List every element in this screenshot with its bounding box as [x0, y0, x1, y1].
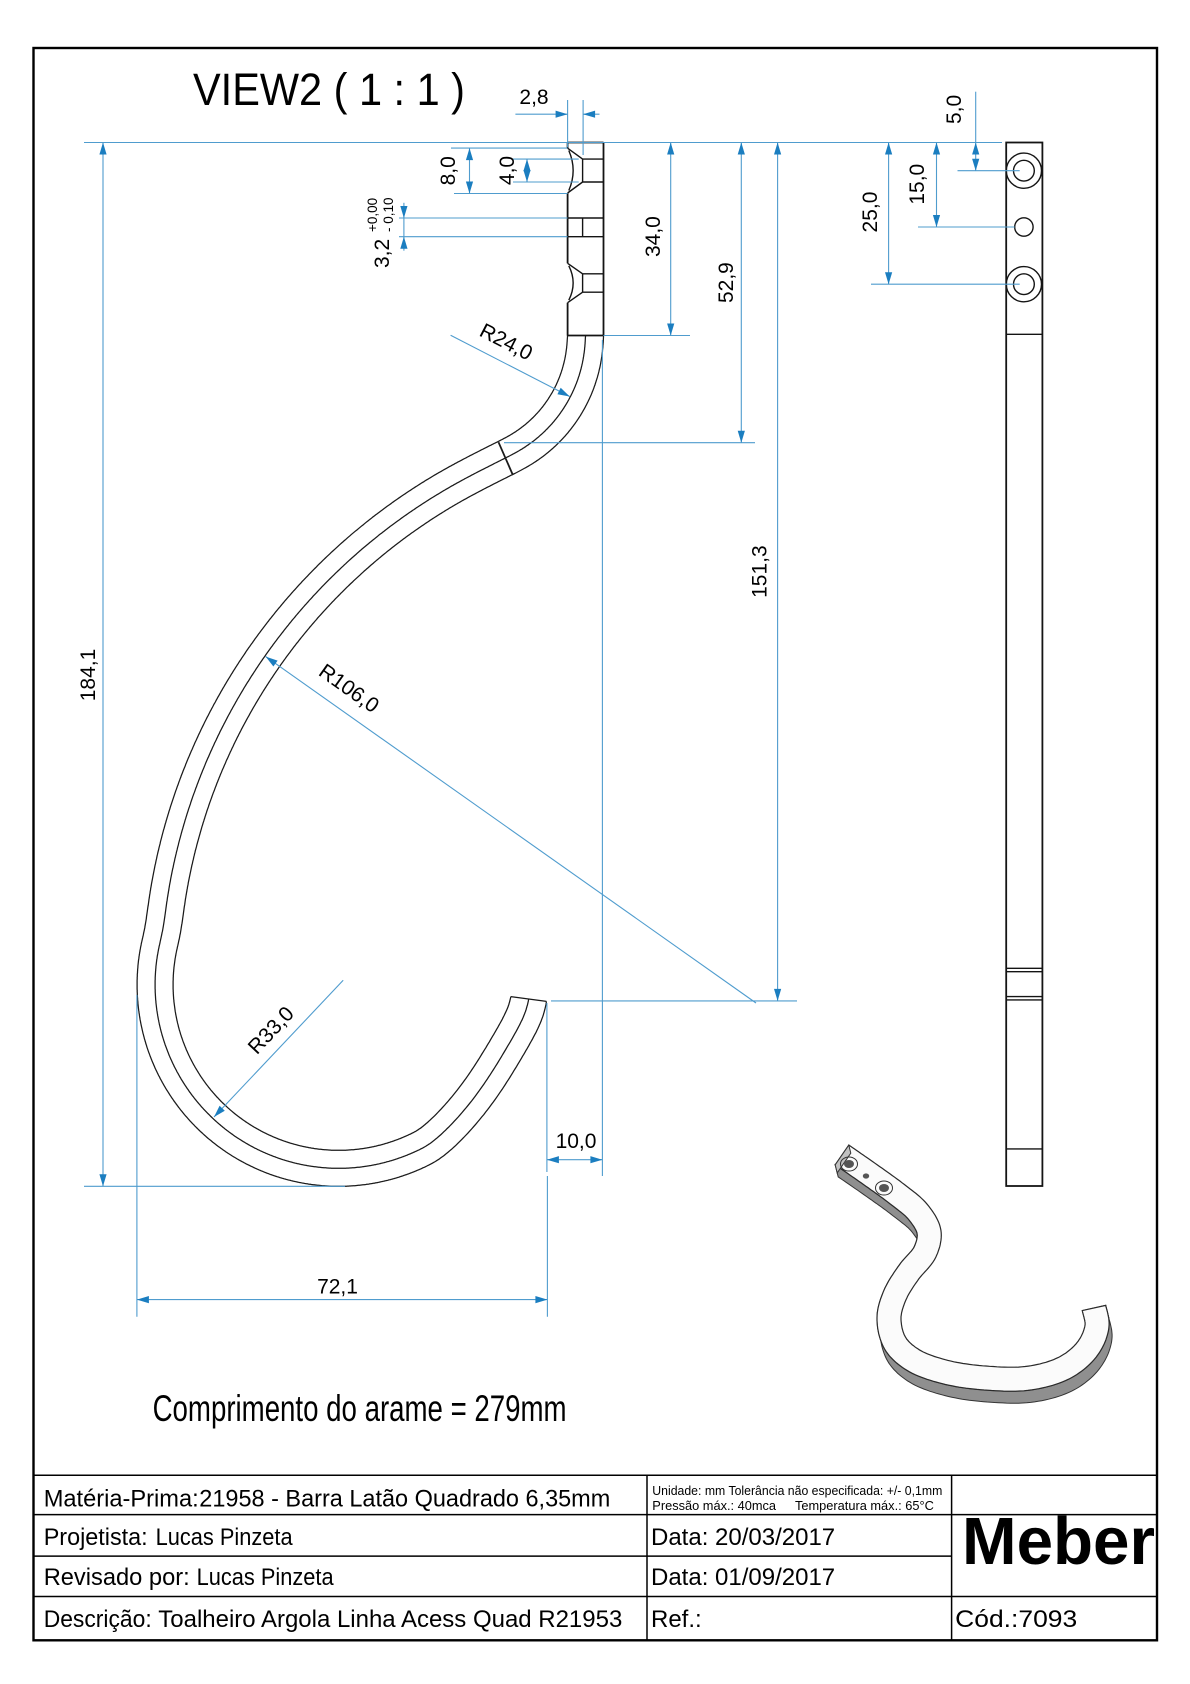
- svg-text:Lucas Pinzeta: Lucas Pinzeta: [197, 1564, 335, 1591]
- svg-text:Temperatura máx.: 65°C: Temperatura máx.: 65°C: [795, 1498, 934, 1513]
- svg-text:Descrição:: Descrição:: [44, 1606, 152, 1633]
- svg-text:Revisado por:: Revisado por:: [44, 1564, 190, 1591]
- svg-text:184,1: 184,1: [77, 649, 100, 702]
- svg-text:Matéria-Prima:: Matéria-Prima:: [44, 1486, 199, 1513]
- svg-text:52,9: 52,9: [715, 262, 738, 303]
- svg-text:8,0: 8,0: [437, 156, 460, 185]
- svg-text:Lucas Pinzeta: Lucas Pinzeta: [156, 1524, 294, 1551]
- svg-text:VIEW2 ( 1 : 1 ): VIEW2 ( 1 : 1 ): [193, 64, 465, 115]
- svg-text:10,0: 10,0: [556, 1130, 597, 1153]
- svg-text:- 0,10: - 0,10: [381, 197, 396, 232]
- svg-text:Projetista:: Projetista:: [44, 1524, 148, 1551]
- svg-text:5,0: 5,0: [943, 95, 966, 124]
- svg-text:72,1: 72,1: [317, 1276, 358, 1299]
- svg-text:15,0: 15,0: [906, 164, 929, 205]
- svg-text:Data: 20/03/2017: Data: 20/03/2017: [651, 1524, 835, 1551]
- svg-text:4,0: 4,0: [496, 156, 519, 185]
- svg-text:21958 - Barra Latão Quadrado 6: 21958 - Barra Latão Quadrado 6,35mm: [199, 1486, 610, 1513]
- svg-text:25,0: 25,0: [859, 192, 882, 233]
- svg-text:Meber: Meber: [962, 1504, 1155, 1579]
- svg-text:Ref.:: Ref.:: [651, 1606, 702, 1633]
- svg-text:Toalheiro Argola Linha Acess Q: Toalheiro Argola Linha Acess Quad R21953: [158, 1606, 622, 1633]
- svg-text:+0,00: +0,00: [365, 198, 380, 232]
- svg-text:151,3: 151,3: [749, 545, 772, 598]
- svg-text:Comprimento do arame = 279mm: Comprimento do arame = 279mm: [153, 1388, 567, 1429]
- svg-text:34,0: 34,0: [642, 216, 665, 257]
- svg-text:Pressão máx.: 40mca: Pressão máx.: 40mca: [652, 1498, 777, 1513]
- svg-text:3,2: 3,2: [371, 239, 394, 268]
- svg-text:Cód.:7093: Cód.:7093: [955, 1606, 1077, 1633]
- svg-text:2,8: 2,8: [519, 86, 548, 109]
- svg-text:Unidade: mm Tolerância não esp: Unidade: mm Tolerância não especificada:…: [652, 1483, 942, 1498]
- svg-text:Data: 01/09/2017: Data: 01/09/2017: [651, 1564, 835, 1591]
